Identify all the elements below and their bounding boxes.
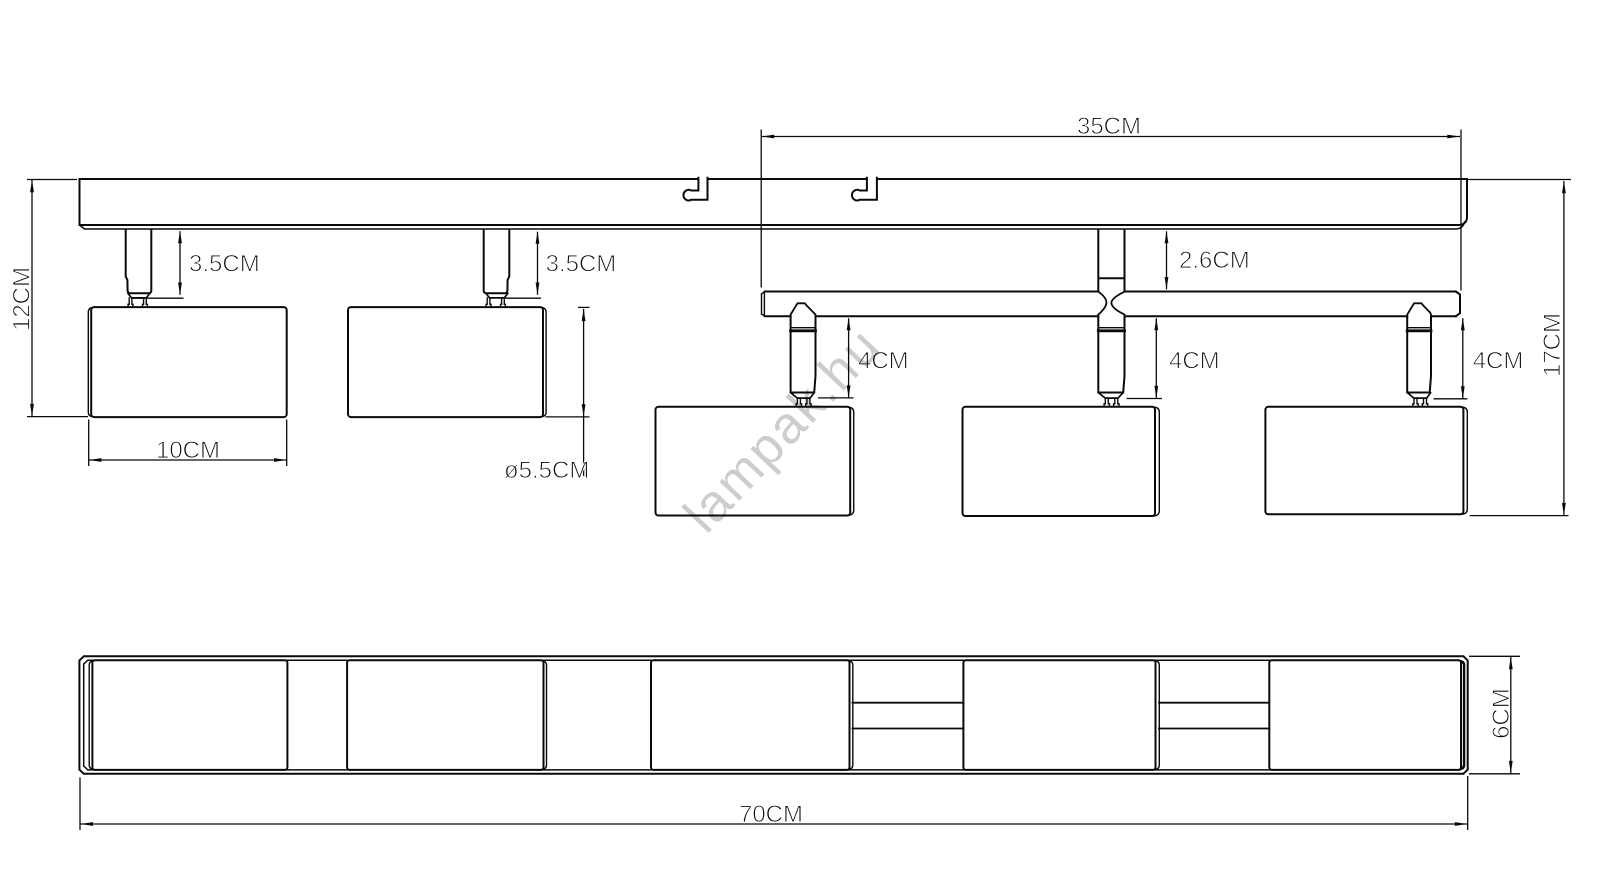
svg-text:ø5.5CM: ø5.5CM (504, 457, 589, 484)
svg-text:3.5CM: 3.5CM (189, 251, 260, 278)
svg-text:12CM: 12CM (9, 267, 36, 331)
svg-text:4CM: 4CM (1169, 348, 1220, 375)
svg-text:4CM: 4CM (1473, 348, 1524, 375)
svg-text:3.5CM: 3.5CM (546, 251, 617, 278)
svg-text:70CM: 70CM (739, 801, 803, 828)
svg-text:10CM: 10CM (156, 437, 220, 464)
svg-text:2.6CM: 2.6CM (1179, 247, 1250, 274)
svg-text:35CM: 35CM (1077, 113, 1141, 140)
svg-text:6CM: 6CM (1488, 688, 1515, 739)
svg-text:17CM: 17CM (1539, 313, 1566, 377)
